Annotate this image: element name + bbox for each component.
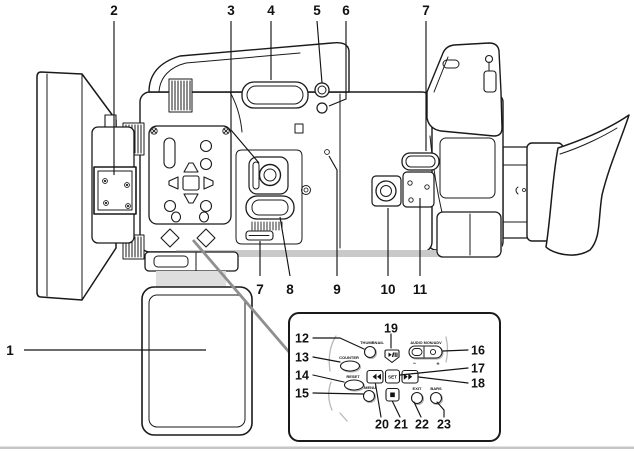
bars-button [431,393,442,404]
handle-sub-button [317,103,327,113]
viewfinder-housing [427,43,502,136]
page-bottom-rule [0,447,634,450]
audio-mon-adv-label: AUDIO MON/ADV [410,341,442,345]
callout-7-bottom: 7 [256,282,264,297]
menu-button [364,391,375,402]
counter-button [341,361,360,371]
callout-6: 6 [342,3,350,18]
callout-19: 19 [384,322,398,336]
callout-22: 22 [415,418,429,432]
stop-button [386,389,399,402]
audio-rocker [409,346,442,358]
thumbnail-button [365,347,376,358]
diagram-canvas: 1 2 3 4 5 6 7 7 8 9 10 11 THUMBNAIL COUN… [0,0,634,452]
callout-11: 11 [413,282,428,297]
plus-label: + [436,362,439,368]
callout-7-top: 7 [422,3,430,18]
strap-hook [486,56,493,63]
callout-3: 3 [227,3,235,18]
callout-23: 23 [437,418,451,432]
set-button: SET [386,370,400,383]
counter-label: COUNTER [339,355,359,360]
callout-5: 5 [313,3,321,18]
callout-13: 13 [295,351,309,365]
callout-10: 10 [380,282,395,297]
callout-16: 16 [471,344,485,358]
callout-15: 15 [295,387,309,401]
exit-button [412,393,423,404]
callout-17: 17 [471,362,485,376]
callout-8: 8 [286,282,294,297]
control-panel-inset: THUMBNAIL COUNTER RESET MENU AUDIO MON/A [289,313,500,441]
callout-2: 2 [110,3,118,18]
viewfinder-eyecup [503,115,629,255]
set-label: SET [388,374,397,379]
exit-label: EXIT [413,386,422,391]
reset-label: RESET [346,374,360,379]
bars-label: BARS [430,386,442,391]
minus-label: − [413,361,416,367]
handle-rec-button [315,83,329,97]
callout-21: 21 [394,418,408,432]
reset-button [345,380,364,390]
rewind-button [367,371,383,384]
callout-1: 1 [6,343,14,358]
callout-18: 18 [471,377,485,391]
zoom-rocker [246,196,294,219]
battery-pack [437,212,501,257]
stop-icon [390,393,395,398]
callout-12: 12 [295,332,309,346]
callout-9: 9 [333,282,341,297]
screw-mount-plate [403,172,434,207]
callout-20: 20 [375,418,389,432]
menu-label: MENU [364,385,376,390]
thumbnail-label: THUMBNAIL [360,340,384,345]
fast-forward-button [402,371,418,384]
lcd-monitor [142,252,252,435]
camcorder-parts-diagram: 1 2 3 4 5 6 7 7 8 9 10 11 THUMBNAIL COUN… [0,0,634,452]
callout-4: 4 [267,3,275,18]
callout-14: 14 [295,369,309,383]
